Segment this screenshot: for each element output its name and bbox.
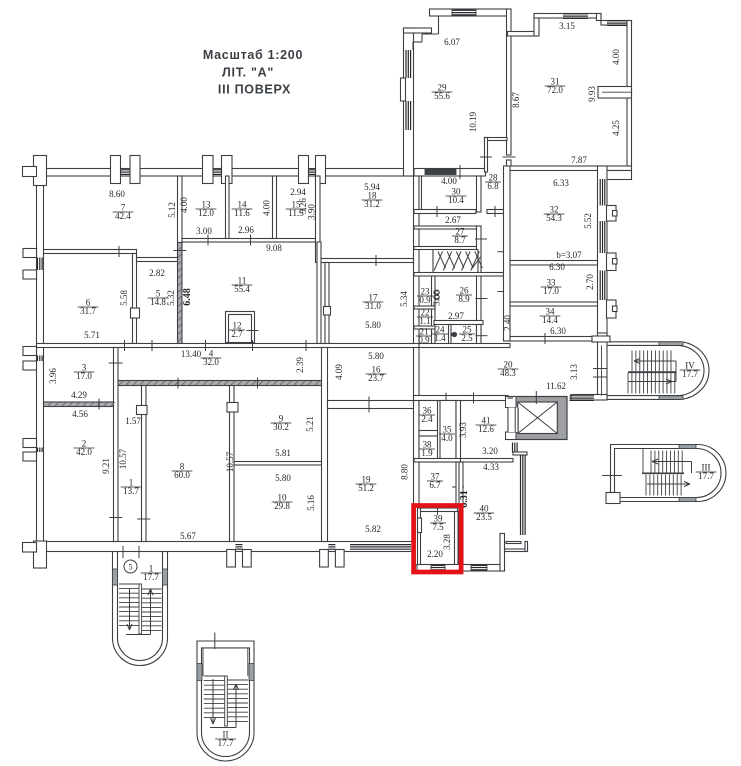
svg-text:9.93: 9.93: [587, 86, 597, 102]
svg-text:6.07: 6.07: [444, 37, 460, 47]
svg-text:b=3.07: b=3.07: [556, 250, 582, 260]
svg-text:17.7: 17.7: [218, 738, 234, 748]
svg-text:8.60: 8.60: [109, 189, 125, 199]
svg-text:5: 5: [129, 563, 133, 572]
svg-text:17.0: 17.0: [76, 371, 92, 381]
svg-text:13.40: 13.40: [181, 349, 202, 359]
svg-text:8.67: 8.67: [511, 92, 521, 108]
svg-text:10.57: 10.57: [118, 448, 128, 469]
svg-text:3.20: 3.20: [482, 446, 498, 456]
svg-text:3.00: 3.00: [196, 226, 212, 236]
svg-text:42.0: 42.0: [76, 447, 92, 457]
svg-text:5.52: 5.52: [583, 213, 593, 229]
svg-text:9.08: 9.08: [266, 243, 282, 253]
svg-text:2.39: 2.39: [295, 357, 305, 373]
svg-text:55.6: 55.6: [434, 91, 450, 101]
svg-text:4.33: 4.33: [483, 462, 499, 472]
svg-text:3.00: 3.00: [432, 290, 442, 306]
svg-text:17.0: 17.0: [543, 286, 559, 296]
svg-text:10.4: 10.4: [448, 195, 464, 205]
svg-text:5.21: 5.21: [305, 416, 315, 432]
svg-text:4.09: 4.09: [334, 364, 344, 380]
svg-text:8.9: 8.9: [458, 294, 470, 304]
svg-text:10.57: 10.57: [225, 451, 235, 472]
svg-text:2.5: 2.5: [461, 333, 473, 343]
svg-text:23.5: 23.5: [476, 512, 492, 522]
svg-text:2.70: 2.70: [585, 274, 595, 290]
svg-text:5.12: 5.12: [167, 202, 177, 218]
svg-text:1.57: 1.57: [125, 416, 141, 426]
svg-text:29.8: 29.8: [274, 501, 290, 511]
svg-text:23.7: 23.7: [368, 373, 384, 383]
svg-text:14.8: 14.8: [150, 297, 166, 307]
svg-text:17.7: 17.7: [143, 572, 159, 582]
svg-text:4.00: 4.00: [611, 49, 621, 65]
svg-text:5.80: 5.80: [368, 351, 384, 361]
svg-text:2.82: 2.82: [149, 268, 165, 278]
svg-text:30.2: 30.2: [273, 422, 289, 432]
svg-text:4.00: 4.00: [179, 197, 189, 213]
svg-text:31.2: 31.2: [364, 199, 380, 209]
svg-text:42.4: 42.4: [115, 211, 131, 221]
svg-text:17.7: 17.7: [682, 369, 698, 379]
svg-text:4.56: 4.56: [72, 409, 88, 419]
svg-text:5.80: 5.80: [365, 320, 381, 330]
svg-text:2.94: 2.94: [290, 187, 306, 197]
svg-text:6.33: 6.33: [553, 178, 569, 188]
svg-text:5.16: 5.16: [306, 495, 316, 511]
svg-text:5.94: 5.94: [364, 182, 380, 192]
svg-text:2.20: 2.20: [427, 549, 443, 559]
svg-text:3.28: 3.28: [442, 534, 452, 550]
svg-text:31.0: 31.0: [365, 301, 381, 311]
svg-text:13.7: 13.7: [123, 486, 139, 496]
svg-text:5.67: 5.67: [180, 531, 196, 541]
svg-text:8.7: 8.7: [454, 235, 466, 245]
svg-text:0.9: 0.9: [419, 295, 431, 305]
svg-text:4.00: 4.00: [441, 176, 457, 186]
svg-text:55.4: 55.4: [234, 284, 250, 294]
svg-text:2.7: 2.7: [231, 329, 243, 339]
svg-text:2.40: 2.40: [503, 315, 513, 331]
svg-text:60.0: 60.0: [174, 470, 190, 480]
svg-text:4.29: 4.29: [71, 390, 87, 400]
svg-text:4.0: 4.0: [441, 433, 453, 443]
svg-text:14.4: 14.4: [542, 315, 558, 325]
svg-text:2.97: 2.97: [448, 311, 464, 321]
svg-text:4.25: 4.25: [611, 120, 621, 136]
svg-text:6.8: 6.8: [487, 181, 499, 191]
svg-text:7.5: 7.5: [432, 522, 444, 532]
svg-text:0.9: 0.9: [418, 335, 430, 345]
svg-text:11.62: 11.62: [546, 381, 566, 391]
svg-text:3.15: 3.15: [559, 21, 575, 31]
svg-text:5.71: 5.71: [84, 330, 100, 340]
svg-text:54.3: 54.3: [546, 213, 562, 223]
svg-text:3.90: 3.90: [307, 204, 317, 220]
svg-text:72.0: 72.0: [547, 85, 563, 95]
svg-text:11.6: 11.6: [234, 208, 250, 218]
svg-text:5.80: 5.80: [275, 473, 291, 483]
svg-text:3.96: 3.96: [48, 368, 58, 384]
svg-text:5.26: 5.26: [298, 198, 308, 214]
svg-text:6.7: 6.7: [429, 480, 441, 490]
svg-text:2.67: 2.67: [445, 215, 461, 225]
svg-text:10.19: 10.19: [468, 111, 478, 132]
svg-text:3.93: 3.93: [458, 422, 468, 438]
svg-text:1.9: 1.9: [421, 448, 433, 458]
svg-text:9.21: 9.21: [101, 458, 111, 474]
svg-text:8.80: 8.80: [400, 464, 410, 480]
svg-text:Масштаб 1:200: Масштаб 1:200: [203, 48, 303, 62]
svg-text:12.6: 12.6: [478, 424, 494, 434]
svg-text:6.30: 6.30: [550, 326, 566, 336]
svg-text:5.81: 5.81: [275, 448, 291, 458]
svg-text:32.0: 32.0: [203, 357, 219, 367]
svg-text:5.34: 5.34: [399, 291, 409, 307]
svg-text:31.7: 31.7: [80, 306, 96, 316]
svg-text:51.2: 51.2: [358, 483, 374, 493]
svg-text:2.96: 2.96: [238, 225, 254, 235]
svg-text:5.82: 5.82: [365, 524, 381, 534]
svg-text:12.0: 12.0: [198, 208, 214, 218]
svg-text:2.4: 2.4: [421, 414, 433, 424]
svg-text:5.58: 5.58: [119, 290, 129, 306]
svg-text:5.32: 5.32: [166, 290, 176, 306]
svg-text:6.30: 6.30: [549, 262, 565, 272]
svg-text:6.48: 6.48: [182, 288, 193, 306]
svg-text:48.3: 48.3: [500, 368, 516, 378]
svg-text:7.87: 7.87: [571, 155, 587, 165]
svg-text:3.13: 3.13: [569, 364, 579, 380]
svg-text:17.7: 17.7: [698, 471, 714, 481]
svg-text:ІІІ ПОВЕРХ: ІІІ ПОВЕРХ: [218, 83, 291, 97]
svg-text:ЛІТ. "А": ЛІТ. "А": [222, 66, 274, 80]
svg-text:1.4: 1.4: [434, 333, 446, 343]
svg-text:1.1: 1.1: [419, 316, 430, 326]
svg-text:4.00: 4.00: [262, 200, 272, 216]
